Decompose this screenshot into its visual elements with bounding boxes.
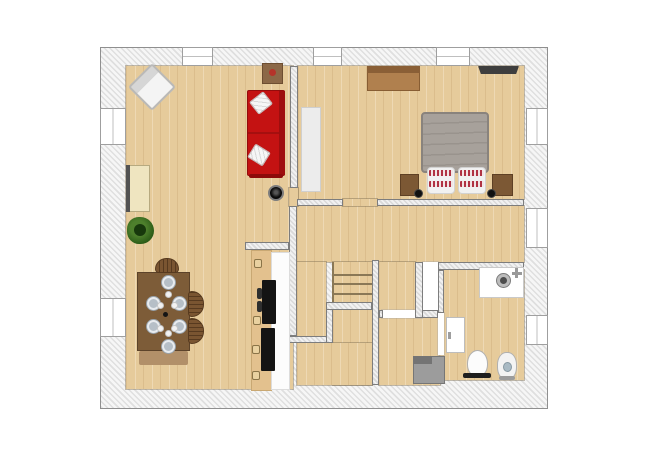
dish-4 [172,303,177,308]
stove-knob-1 [257,288,262,299]
sofa-shadow [249,174,283,178]
flower-pot [268,185,284,201]
window-top-3 [436,47,470,66]
stair-step-line-2 [333,283,372,285]
bedroom-door-floor [343,199,377,206]
sideboard-edge [126,165,130,212]
window-top-1 [182,47,213,66]
sink-faucet-center [500,277,507,284]
table-candle [163,312,168,317]
lamp-right [487,189,496,198]
hall-east-floor [379,262,415,310]
side-table-plant [269,69,276,76]
dish-3 [158,303,163,308]
dish-6 [172,326,177,331]
bidet-base [499,376,515,380]
sofa-backrest [279,91,285,175]
sink-tap-2 [515,268,518,278]
wall-bathroom-west [438,270,444,313]
wall-vestibule-top-left [379,310,383,318]
toilet-base [463,373,491,378]
lower-hall-floor-2 [297,343,372,385]
wall-living-hall [289,206,297,336]
washer-handle [448,332,451,339]
pillow-band-1 [429,170,453,176]
stair-step-line-3 [333,293,372,295]
cabinet-handle-3 [252,345,260,354]
pillow-band-2 [429,181,453,187]
shower-unit-shade [413,356,432,364]
wall-kitchen-stub [245,242,289,250]
chair-top [155,258,179,273]
plate-1 [162,276,175,289]
window-right-2 [526,208,548,248]
kitchen-appliance-1 [262,280,276,324]
dining-table-end [139,351,188,365]
bedroom-closet [301,107,321,192]
bed-duvet [421,112,489,173]
pillow-band-3 [460,170,484,176]
wall-living-bedroom [290,66,298,188]
hall-floor [297,206,524,262]
dish-1 [166,292,171,297]
wall-bedroom-south-west [297,199,343,206]
plate-6 [162,340,175,353]
corridor-floor [297,262,326,336]
floor-plan-canvas [0,0,650,450]
bidet-drain [503,362,512,372]
kitchen-appliance-2 [261,328,275,371]
bathroom-door-opening [438,313,444,355]
sofa-seam [248,132,279,134]
dish-2 [166,331,171,336]
pillow-band-4 [460,181,484,187]
wall-bedroom-south-east [377,199,524,206]
dresser-top [367,66,420,73]
radiator [478,66,519,74]
window-right-1 [526,108,548,145]
wall-understairs [326,302,372,310]
wall-vestibule-top-right [422,310,438,318]
potted-plant-core [134,224,146,236]
bathroom-door-threshold [423,262,438,310]
stair-step-line-1 [333,274,372,276]
cabinet-handle-4 [252,371,260,380]
cabinet-handle-2 [253,316,261,325]
dish-5 [158,326,163,331]
wall-stair-east [372,260,379,385]
stair-edge-line [332,262,334,302]
lamp-left [414,189,423,198]
window-right-3 [526,315,548,345]
window-top-2 [313,47,342,66]
window-left-1 [100,108,126,145]
stove-knob-2 [257,301,262,312]
window-left-2 [100,298,126,337]
cabinet-handle-1 [254,259,262,268]
